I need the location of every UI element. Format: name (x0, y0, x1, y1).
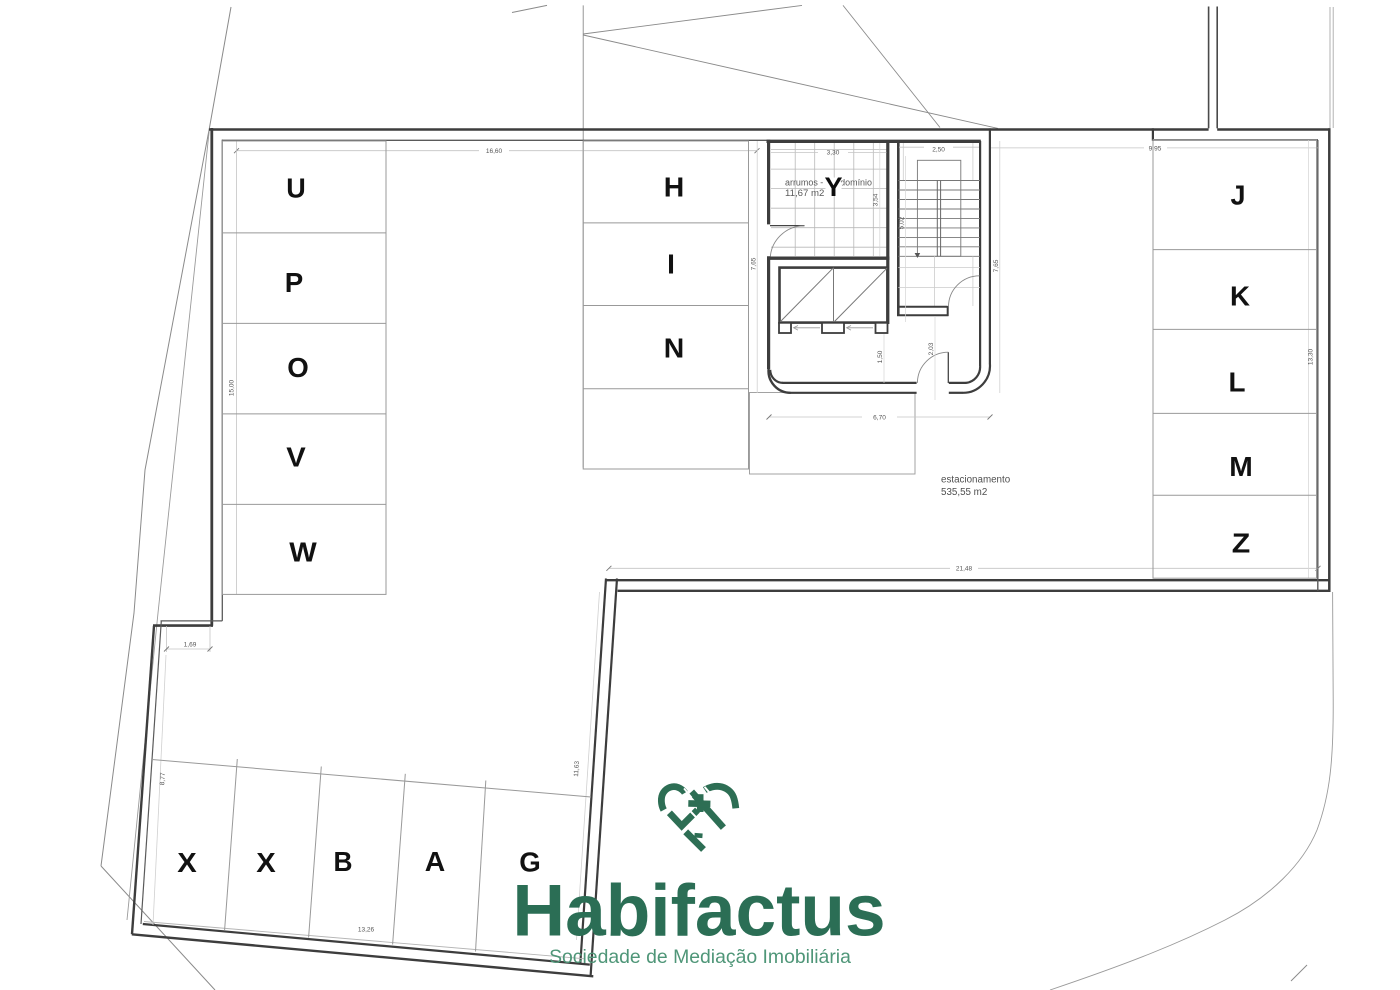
svg-text:Z: Z (1232, 528, 1251, 559)
svg-text:Sociedade de Mediação Imobiliá: Sociedade de Mediação Imobiliária (549, 946, 851, 968)
svg-text:N: N (664, 333, 685, 364)
svg-text:M: M (1229, 451, 1253, 482)
svg-text:estacionamento: estacionamento (941, 475, 1011, 486)
svg-text:6,70: 6,70 (873, 414, 886, 421)
svg-text:O: O (287, 352, 309, 383)
svg-text:1,50: 1,50 (877, 350, 884, 363)
svg-text:8,77: 8,77 (159, 772, 167, 785)
svg-text:9,95: 9,95 (1149, 145, 1162, 152)
svg-text:V: V (286, 441, 306, 472)
svg-text:U: U (286, 172, 306, 203)
svg-text:K: K (1230, 280, 1250, 311)
svg-text:11,67 m2: 11,67 m2 (785, 188, 824, 199)
svg-text:L: L (1229, 366, 1246, 397)
svg-text:X: X (177, 847, 197, 878)
svg-text:I: I (667, 248, 675, 279)
svg-text:J: J (1231, 180, 1246, 211)
svg-text:7,65: 7,65 (751, 257, 758, 270)
svg-text:2,03: 2,03 (928, 342, 935, 355)
svg-text:A: A (425, 846, 446, 877)
svg-text:H: H (664, 171, 685, 202)
svg-text:21,48: 21,48 (956, 566, 973, 573)
svg-text:P: P (285, 267, 304, 298)
svg-text:5,02: 5,02 (899, 216, 906, 229)
svg-text:Y: Y (824, 172, 842, 202)
svg-text:535,55 m2: 535,55 m2 (941, 487, 987, 498)
svg-text:2,50: 2,50 (932, 146, 945, 153)
svg-text:W: W (289, 536, 317, 567)
svg-text:7,65: 7,65 (993, 259, 1000, 272)
svg-text:X: X (256, 847, 276, 878)
svg-text:16,60: 16,60 (486, 148, 503, 155)
svg-text:3,30: 3,30 (827, 150, 840, 157)
svg-text:11,63: 11,63 (573, 760, 581, 777)
svg-text:1,69: 1,69 (184, 641, 197, 648)
svg-text:15,00: 15,00 (229, 379, 236, 396)
svg-text:Habifactus: Habifactus (512, 871, 885, 952)
svg-text:13,26: 13,26 (358, 927, 375, 934)
svg-text:13,30: 13,30 (1308, 348, 1315, 365)
svg-text:3,54: 3,54 (873, 193, 880, 206)
svg-text:B: B (334, 846, 353, 877)
